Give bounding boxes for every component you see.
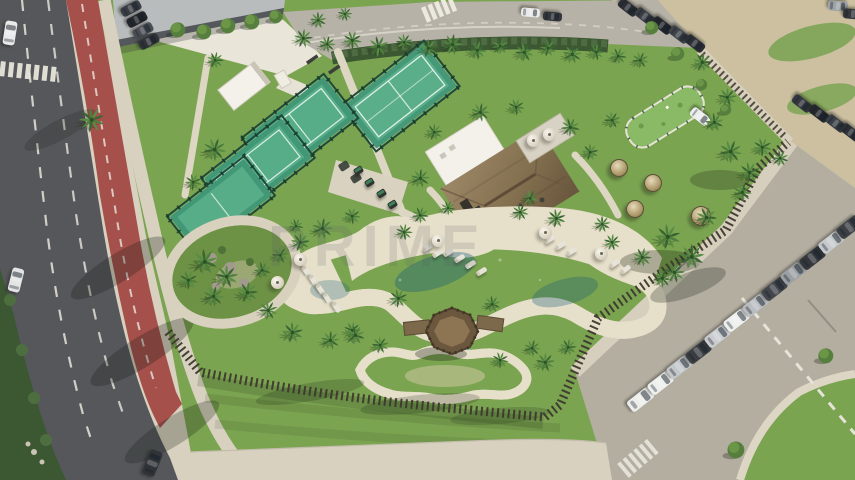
aerial-resort-render: PRIME: [0, 0, 855, 480]
watermark-text: PRIME: [268, 213, 487, 280]
